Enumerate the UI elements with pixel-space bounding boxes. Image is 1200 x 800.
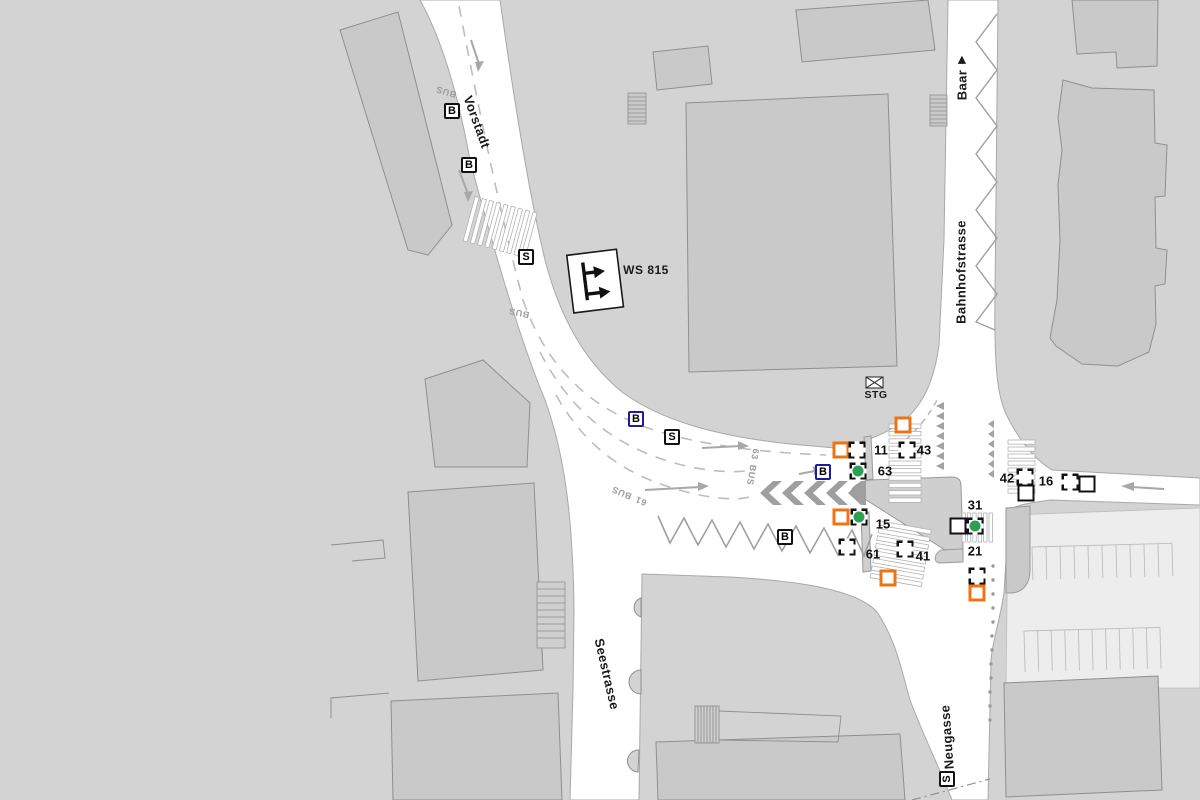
bus-stop-box-blue-1: B bbox=[628, 411, 644, 427]
parking-area bbox=[1006, 508, 1200, 688]
bus-line-number: 63 bbox=[749, 448, 761, 461]
crosswalk-north bbox=[889, 424, 921, 502]
signal-box-3: S bbox=[939, 771, 955, 787]
dashed-signal-marker bbox=[897, 541, 914, 558]
signal-number-11: 11 bbox=[874, 443, 888, 458]
bus-stop-box-blue-2: B bbox=[815, 464, 831, 480]
orange-signal-marker bbox=[880, 570, 897, 587]
stg-controller-icon bbox=[866, 377, 883, 388]
signal-number-16: 16 bbox=[1039, 474, 1053, 489]
green-signal-marker bbox=[850, 463, 867, 480]
bus-stop-box-2: B bbox=[461, 157, 477, 173]
dashed-signal-marker bbox=[849, 442, 866, 459]
ws815-sign-label: WS 815 bbox=[623, 263, 669, 277]
signal-number-31: 31 bbox=[968, 498, 982, 513]
direction-arrow-icon: ▶ bbox=[957, 56, 968, 64]
signal-box-2: S bbox=[664, 429, 680, 445]
bus-stop-box-1: B bbox=[444, 103, 460, 119]
signal-number-43: 43 bbox=[917, 443, 931, 458]
orange-signal-marker bbox=[895, 417, 912, 434]
signal-number-42: 42 bbox=[1000, 471, 1014, 486]
signal-number-21: 21 bbox=[968, 544, 982, 559]
orange-signal-marker bbox=[969, 585, 986, 602]
signal-number-63: 63 bbox=[878, 464, 892, 479]
white-signal-marker bbox=[950, 518, 967, 535]
white-signal-marker bbox=[1079, 476, 1096, 493]
signal-number-61: 61 bbox=[866, 547, 880, 562]
orange-signal-marker bbox=[833, 442, 850, 459]
dashed-signal-marker bbox=[1062, 474, 1079, 491]
dashed-signal-marker bbox=[969, 568, 986, 585]
map-canvas: Vorstadt Bahnhofstrasse Seestrasse Neuga… bbox=[0, 0, 1200, 800]
neugasse-median bbox=[935, 549, 963, 563]
ws815-sign bbox=[567, 249, 624, 313]
parking-island bbox=[1006, 506, 1030, 593]
white-signal-marker bbox=[1018, 485, 1035, 502]
green-signal-marker bbox=[851, 509, 868, 526]
orange-signal-marker bbox=[833, 509, 850, 526]
direction-sign-baar: Baar ▶ bbox=[955, 56, 970, 101]
signal-number-15: 15 bbox=[876, 517, 890, 532]
signal-box-1: S bbox=[518, 249, 534, 265]
green-signal-marker bbox=[967, 518, 984, 535]
bus-stop-box-3: B bbox=[777, 529, 793, 545]
dashed-signal-marker bbox=[839, 539, 856, 556]
signal-number-41: 41 bbox=[916, 549, 930, 564]
direction-label: Baar bbox=[955, 70, 970, 101]
dashed-signal-marker bbox=[899, 442, 916, 459]
street-label-bahnhofstrasse: Bahnhofstrasse bbox=[954, 220, 969, 324]
stg-label: STG bbox=[864, 389, 887, 401]
dashed-signal-marker bbox=[1017, 469, 1034, 486]
